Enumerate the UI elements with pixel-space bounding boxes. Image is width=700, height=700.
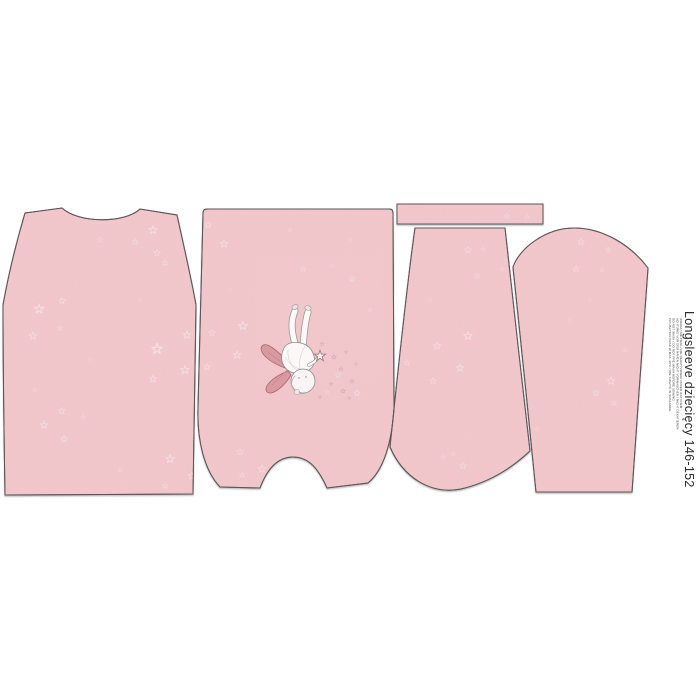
fabric-panel-photo: Longsleeve dziecięcy 146-152 UWAGA! NIE … — [0, 0, 700, 700]
care-instructions: UWAGA! NIE PRAĆ / NIE DEKATYZOWAĆ PRZED … — [667, 318, 682, 511]
care-line: PO USZYCIU PRAĆ W MAX. 30°C / NIE SUSZYĆ… — [667, 318, 671, 511]
panel-side-label: Longsleeve dziecięcy 146-152 UWAGA! NIE … — [667, 311, 696, 511]
panel-title: Longsleeve dziecięcy 146-152 — [682, 311, 696, 511]
fairy-head — [291, 369, 315, 393]
pattern-pieces-graphic — [0, 0, 700, 700]
star-motif — [279, 477, 286, 483]
